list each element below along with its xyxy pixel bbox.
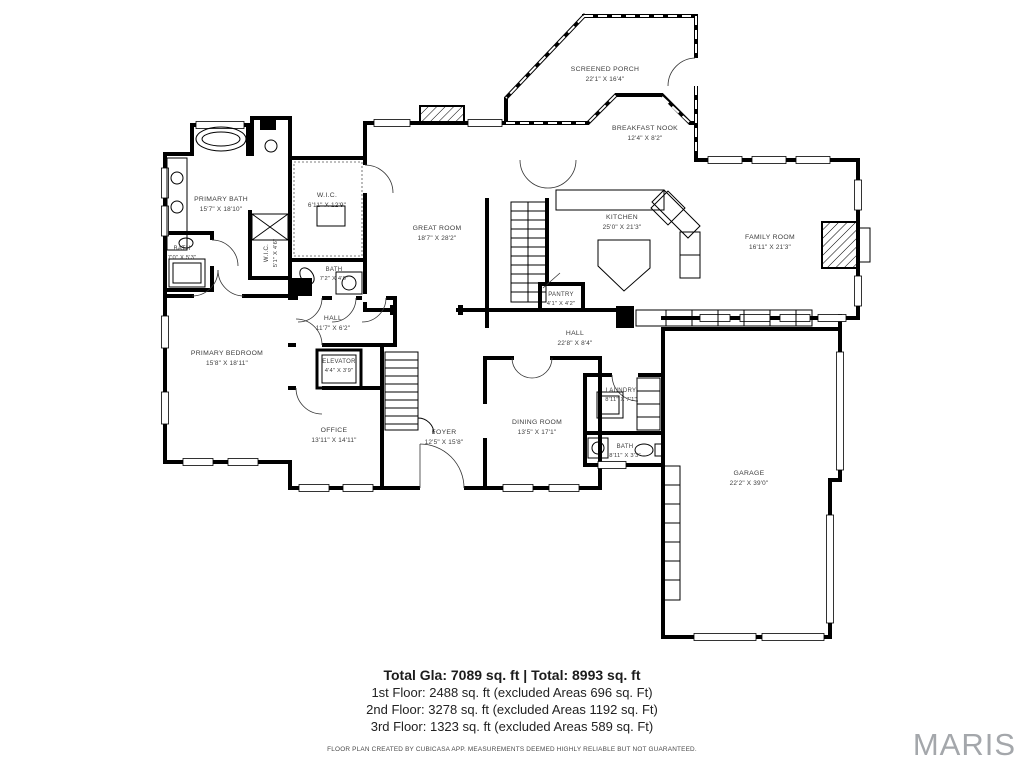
room-label-dining-room: DINING ROOM 13'5" X 17'1"	[512, 418, 562, 438]
room-label-laundry: LAUNDRY 8'11" X 7'1"	[605, 387, 637, 405]
room-label-hall-main: HALL 22'8" X 8'4"	[558, 329, 593, 349]
room-label-garage: GARAGE 22'2" X 39'0"	[730, 469, 769, 489]
room-label-family-room: FAMILY ROOM 16'11" X 21'3"	[745, 233, 795, 253]
room-dims: 15'8" X 18'11"	[191, 359, 263, 369]
area-summary: Total Gla: 7089 sq. ft | Total: 8993 sq.…	[0, 666, 1024, 735]
room-dims: 15'7" X 18'10"	[194, 205, 248, 215]
room-label-pantry: PANTRY 4'1" X 4'2"	[547, 291, 576, 309]
maris-watermark: MARIS	[913, 727, 1016, 763]
room-label-elevator: ELEVATOR 4'4" X 3'9"	[322, 358, 355, 376]
total-area-line: Total Gla: 7089 sq. ft | Total: 8993 sq.…	[0, 666, 1024, 684]
floor3-area-line: 3rd Floor: 1323 sq. ft (excluded Areas 5…	[0, 718, 1024, 735]
room-dims: 25'0" X 21'3"	[603, 223, 642, 233]
room-name: GREAT ROOM	[413, 224, 462, 234]
room-dims: 7'2" X 4'6"	[320, 275, 349, 284]
room-label-screened-porch: SCREENED PORCH 22'1" X 16'4"	[571, 65, 639, 85]
room-name: GARAGE	[730, 469, 769, 479]
room-name: PRIMARY BATH	[194, 195, 248, 205]
room-name: FOYER	[425, 428, 464, 438]
room-dims: 22'1" X 16'4"	[571, 75, 639, 85]
room-name: PANTRY	[547, 291, 576, 300]
floor2-area-line: 2nd Floor: 3278 sq. ft (excluded Areas 1…	[0, 701, 1024, 718]
room-name: BATH	[609, 443, 641, 452]
room-label-hall-upper: HALL 11'7" X 6'2"	[316, 314, 351, 334]
room-label-office: OFFICE 13'11" X 14'11"	[311, 426, 356, 446]
room-label-kitchen: KITCHEN 25'0" X 21'3"	[603, 213, 642, 233]
room-name: BATH	[168, 245, 197, 254]
room-label-primary-bath: PRIMARY BATH 15'7" X 18'10"	[194, 195, 248, 215]
room-dims: 7'0" X 5'3"	[168, 254, 197, 263]
floor1-area-line: 1st Floor: 2488 sq. ft (excluded Areas 6…	[0, 684, 1024, 701]
room-label-wic-primary: W.I.C. 6'11" X 12'9"	[308, 191, 346, 211]
room-name: HALL	[316, 314, 351, 324]
room-name: BREAKFAST NOOK	[612, 124, 678, 134]
room-label-bath-hall: BATH 7'2" X 4'6"	[320, 266, 349, 284]
room-dims: 12'5" X 15'8"	[425, 438, 464, 448]
room-dims: 8'11" X 3'3"	[609, 452, 641, 461]
room-label-bath-garage: BATH 8'11" X 3'3"	[609, 443, 641, 461]
room-label-bath-primary: BATH 7'0" X 5'3"	[168, 245, 197, 263]
room-dims: 16'11" X 21'3"	[745, 243, 795, 253]
room-dims: 18'7" X 28'2"	[413, 234, 462, 244]
room-label-breakfast-nook: BREAKFAST NOOK 12'4" X 8'2"	[612, 124, 678, 144]
room-dims: 11'7" X 6'2"	[316, 324, 351, 334]
room-name: LAUNDRY	[605, 387, 637, 396]
room-dims: 22'8" X 8'4"	[558, 339, 593, 349]
floor-plan-page: SCREENED PORCH 22'1" X 16'4" BREAKFAST N…	[0, 0, 1024, 768]
room-name: OFFICE	[311, 426, 356, 436]
room-name: KITCHEN	[603, 213, 642, 223]
room-label-great-room: GREAT ROOM 18'7" X 28'2"	[413, 224, 462, 244]
room-label-primary-bedroom: PRIMARY BEDROOM 15'8" X 18'11"	[191, 349, 263, 369]
room-dims: 13'11" X 14'11"	[311, 436, 356, 446]
room-name: FAMILY ROOM	[745, 233, 795, 243]
room-name: W.I.C.	[308, 191, 346, 201]
room-dims: 13'5" X 17'1"	[512, 428, 562, 438]
room-dims: 4'1" X 4'2"	[547, 300, 576, 309]
room-dims: 5'1" X 4'6"	[272, 239, 281, 268]
room-labels-layer: SCREENED PORCH 22'1" X 16'4" BREAKFAST N…	[0, 0, 1024, 768]
room-dims: 8'11" X 7'1"	[605, 396, 637, 405]
room-dims: 6'11" X 12'9"	[308, 201, 346, 211]
room-name: DINING ROOM	[512, 418, 562, 428]
room-label-foyer: FOYER 12'5" X 15'8"	[425, 428, 464, 448]
room-name: W.I.C.	[263, 239, 272, 268]
room-label-wic-small: W.I.C. 5'1" X 4'6"	[263, 239, 281, 268]
room-name: HALL	[558, 329, 593, 339]
room-name: SCREENED PORCH	[571, 65, 639, 75]
room-name: ELEVATOR	[322, 358, 355, 367]
room-name: PRIMARY BEDROOM	[191, 349, 263, 359]
room-name: BATH	[320, 266, 349, 275]
room-dims: 4'4" X 3'9"	[322, 367, 355, 376]
disclaimer-text: FLOOR PLAN CREATED BY CUBICASA APP. MEAS…	[0, 746, 1024, 753]
room-dims: 22'2" X 39'0"	[730, 479, 769, 489]
room-dims: 12'4" X 8'2"	[612, 134, 678, 144]
